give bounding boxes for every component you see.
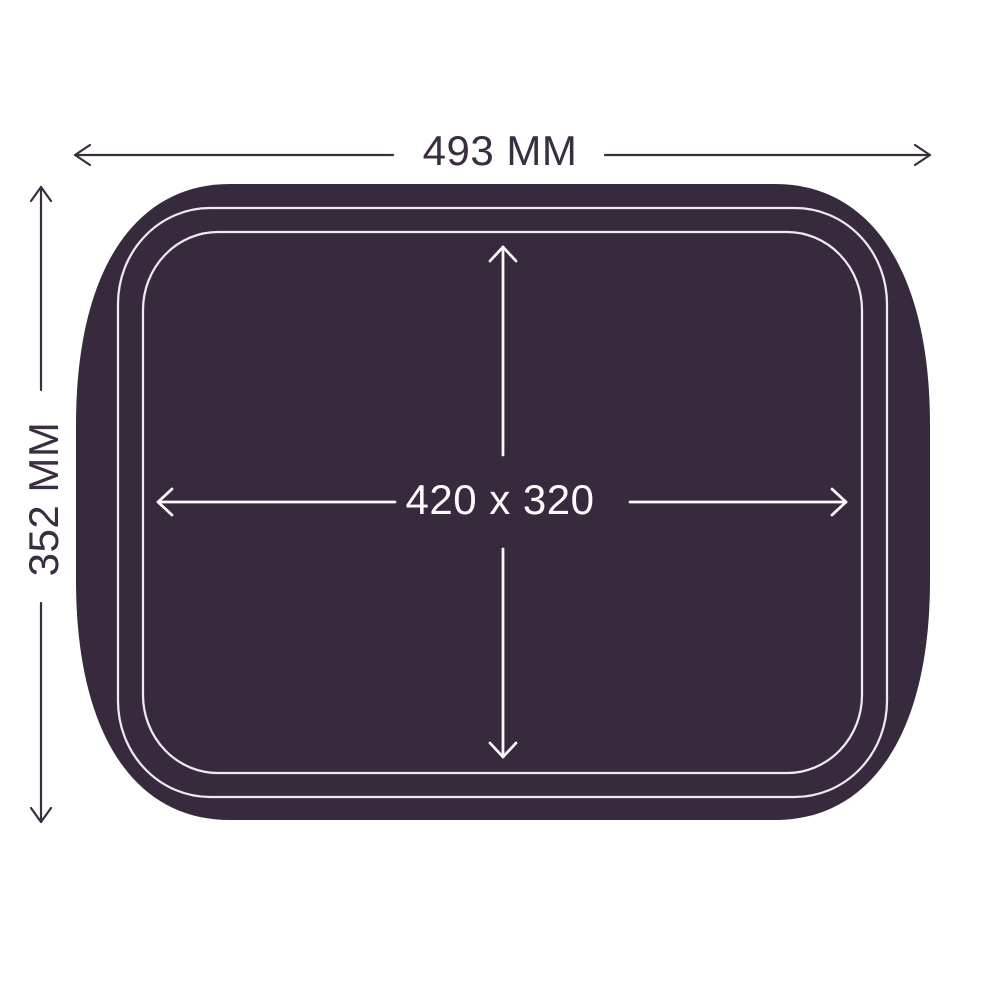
inner-dimension-label: 420 x 320 [0, 479, 1000, 521]
width-dimension-label: 493 MM [0, 130, 1000, 172]
tray-dimension-diagram: 493 MM 352 MM 420 x 320 [0, 0, 1000, 1000]
